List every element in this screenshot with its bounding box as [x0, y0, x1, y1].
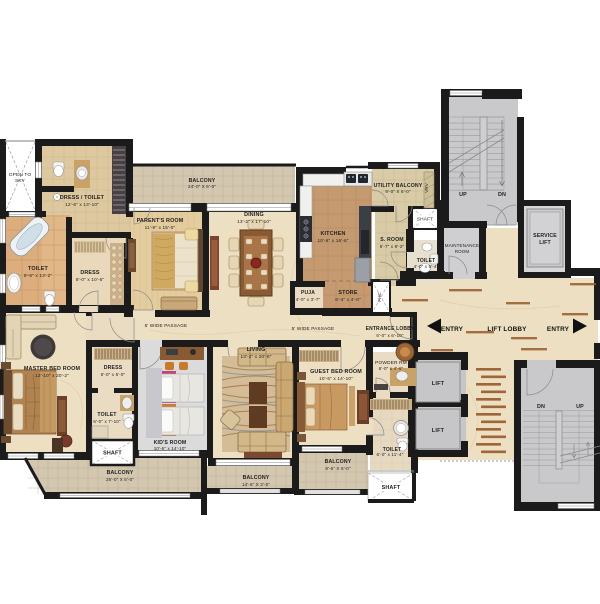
svg-text:MAINTENANCE: MAINTENANCE	[445, 243, 479, 248]
svg-text:GUEST BED ROOM: GUEST BED ROOM	[310, 369, 362, 375]
svg-text:LIFT LOBBY: LIFT LOBBY	[487, 326, 527, 333]
svg-text:24'-0" X 6'-0": 24'-0" X 6'-0"	[188, 184, 216, 189]
svg-text:MASTER BED ROOM: MASTER BED ROOM	[24, 366, 81, 372]
svg-text:5'-7" x 9'-2": 5'-7" x 9'-2"	[380, 244, 405, 249]
svg-text:TOILET: TOILET	[28, 266, 49, 272]
svg-text:VRV: VRV	[424, 182, 430, 193]
svg-text:SHAFT: SHAFT	[417, 217, 433, 223]
svg-text:SERVICE: SERVICE	[533, 233, 557, 239]
svg-text:OPEN TO: OPEN TO	[9, 172, 32, 178]
svg-text:12'-10" x 20'-2": 12'-10" x 20'-2"	[35, 373, 69, 378]
svg-text:4'-0" x 6'-4": 4'-0" x 6'-4"	[414, 264, 439, 269]
svg-text:13'-2" x 20'-8": 13'-2" x 20'-8"	[240, 354, 271, 359]
svg-text:ENTRY: ENTRY	[547, 326, 570, 333]
svg-text:LIFT: LIFT	[432, 381, 445, 387]
svg-text:5' WIDE PASSAGE: 5' WIDE PASSAGE	[145, 323, 188, 328]
svg-text:BALCONY: BALCONY	[107, 470, 134, 476]
svg-text:BALCONY: BALCONY	[325, 459, 352, 465]
svg-text:6'-0" x 5'-0": 6'-0" x 5'-0"	[101, 372, 126, 377]
svg-text:10'-6" x 14'-10": 10'-6" x 14'-10"	[319, 376, 353, 381]
svg-text:DRESS: DRESS	[104, 365, 123, 371]
svg-text:TOILET: TOILET	[97, 412, 117, 418]
svg-text:ENTRANCE LOBBY: ENTRANCE LOBBY	[366, 326, 415, 332]
svg-text:4'-0" x 3'-7": 4'-0" x 3'-7"	[296, 297, 321, 302]
svg-text:9'-6" x 13'-2": 9'-6" x 13'-2"	[24, 273, 53, 278]
svg-text:6'-0" x 11'-4": 6'-0" x 11'-4"	[377, 452, 404, 457]
svg-text:13'-2" x 17'-10": 13'-2" x 17'-10"	[237, 219, 271, 224]
svg-text:SKY: SKY	[15, 178, 26, 184]
svg-text:PARENT'S ROOM: PARENT'S ROOM	[137, 218, 184, 224]
svg-text:LIFT: LIFT	[432, 428, 445, 434]
svg-text:DRESS: DRESS	[80, 270, 100, 276]
svg-text:FHC: FHC	[377, 292, 382, 302]
svg-text:10'-6" x 14'-10": 10'-6" x 14'-10"	[154, 446, 187, 451]
svg-text:6'-0" x 7'-10": 6'-0" x 7'-10"	[93, 419, 121, 424]
svg-text:UP: UP	[576, 404, 584, 410]
svg-text:DINING: DINING	[244, 212, 264, 218]
svg-text:10'-6" x 16'-6": 10'-6" x 16'-6"	[317, 238, 348, 243]
svg-text:8'-0" x 10'-6": 8'-0" x 10'-6"	[76, 277, 105, 282]
svg-text:S. ROOM: S. ROOM	[380, 237, 404, 243]
svg-text:DN: DN	[498, 192, 506, 198]
svg-text:BALCONY: BALCONY	[243, 475, 270, 481]
svg-text:STORE: STORE	[338, 290, 357, 296]
svg-text:5' WIDE PASSAGE: 5' WIDE PASSAGE	[292, 326, 335, 331]
svg-text:12'-6" x 13'-10": 12'-6" x 13'-10"	[65, 202, 99, 207]
svg-text:PUJA: PUJA	[301, 290, 315, 296]
svg-text:6'-0" x 6'-10": 6'-0" x 6'-10"	[376, 333, 404, 338]
svg-text:DN: DN	[537, 404, 545, 410]
svg-text:SHAFT: SHAFT	[103, 451, 122, 457]
svg-text:ROOM: ROOM	[455, 249, 470, 254]
svg-text:LIFT: LIFT	[539, 240, 551, 246]
svg-text:6'-0" x 4'-6": 6'-0" x 4'-6"	[379, 366, 404, 371]
svg-text:26'-0" X 6'-0": 26'-0" X 6'-0"	[106, 477, 134, 482]
svg-text:11'-9" x 15'-0": 11'-9" x 15'-0"	[145, 225, 176, 230]
svg-text:UP: UP	[459, 192, 467, 198]
svg-text:14'-6" X 3'-0": 14'-6" X 3'-0"	[242, 482, 270, 487]
svg-text:9'-0" X 6'-0": 9'-0" X 6'-0"	[385, 189, 411, 194]
svg-text:9'-6" X 6'-0": 9'-6" X 6'-0"	[325, 466, 351, 471]
svg-text:6'-4" x 4'-0": 6'-4" x 4'-0"	[335, 297, 361, 302]
svg-text:SHAFT: SHAFT	[382, 485, 401, 491]
svg-text:DRESS / TOILET: DRESS / TOILET	[60, 195, 105, 201]
svg-text:LIVING: LIVING	[247, 347, 266, 353]
svg-text:KITCHEN: KITCHEN	[320, 231, 345, 237]
svg-text:ENTRY: ENTRY	[441, 326, 464, 333]
